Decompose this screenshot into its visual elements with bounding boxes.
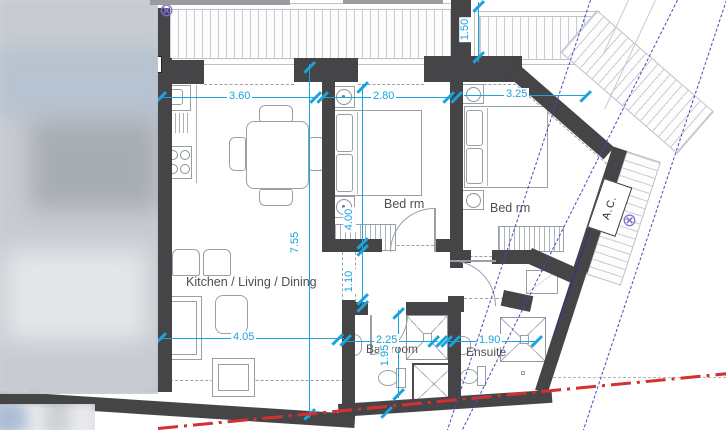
dim-label-bedroom1-width: 2.80 [371,90,396,103]
room-label-bedroom1: Bed rm [384,197,424,211]
floor-plan: Kitchen / Living / Dining Bed rm Bed rm … [0,0,726,430]
wall [434,239,452,252]
room-label-kitchen-living-dining: Kitchen / Living / Dining [186,275,317,289]
bed-sheet-line [357,112,358,194]
dining-table [246,121,309,189]
armchair [203,249,231,276]
kitchen-counter-edge [196,85,197,183]
coffee-table-inner [218,364,249,391]
dim-label-bedroom2-width: 3.25 [504,88,529,101]
dim-label-bathroom-length: 1.95 [379,343,392,368]
toilet-bowl [378,370,398,386]
pillow [466,110,483,146]
dim-tick [579,90,591,102]
dim-label-bedroom1-length: 4.00 [343,207,356,232]
privacy-blur-region-bottom [0,404,95,430]
lamp-icon [466,193,481,208]
dim-label-living-length: 7.55 [289,230,302,255]
wall [342,300,355,412]
circled-x-marker-icon: ⊗ [622,212,637,229]
wall [406,302,452,315]
room-label-bedroom2: Bed rm [490,201,530,215]
stove-burner [180,164,190,174]
sofa-cushion-line [171,301,197,355]
door-arc [390,208,434,252]
armchair [215,295,248,334]
dim-label-hall-width: 1.10 [343,269,356,294]
door-leaf [434,208,436,252]
wall [448,302,461,400]
dimension-line [362,84,363,306]
dining-chair [259,105,293,122]
dining-chair [259,189,293,206]
dim-label-ensuite-width: 1.90 [477,334,502,347]
dim-label-living-width: 4.05 [231,331,256,344]
pillow [466,148,483,184]
balcony-hatch-top [169,9,455,59]
privacy-blur-region [0,0,158,394]
ac-unit-label: A.C. [600,194,619,221]
dim-label-balcony-depth: 1.50 [459,17,472,42]
dim-label-kitchen-width: 3.60 [227,90,252,103]
slab-edge-bar [343,0,443,4]
wall [322,239,382,252]
window-line-bedroom1 [358,84,424,85]
pillow [336,114,353,152]
shower-drain [520,335,529,344]
bed-sheet-line [487,108,488,186]
wall [322,82,335,252]
dimension-line [309,64,310,418]
window-line-kitchen [204,84,294,85]
slab-edge-bar [150,0,290,5]
wall [156,60,204,84]
floor-drain [521,371,525,375]
dining-chair [229,137,246,171]
armchair [172,249,200,276]
pillow [336,154,353,192]
door-leaf [450,260,496,262]
door-arc [450,260,496,306]
stove-burner [180,150,190,160]
dimension-line [398,310,399,398]
